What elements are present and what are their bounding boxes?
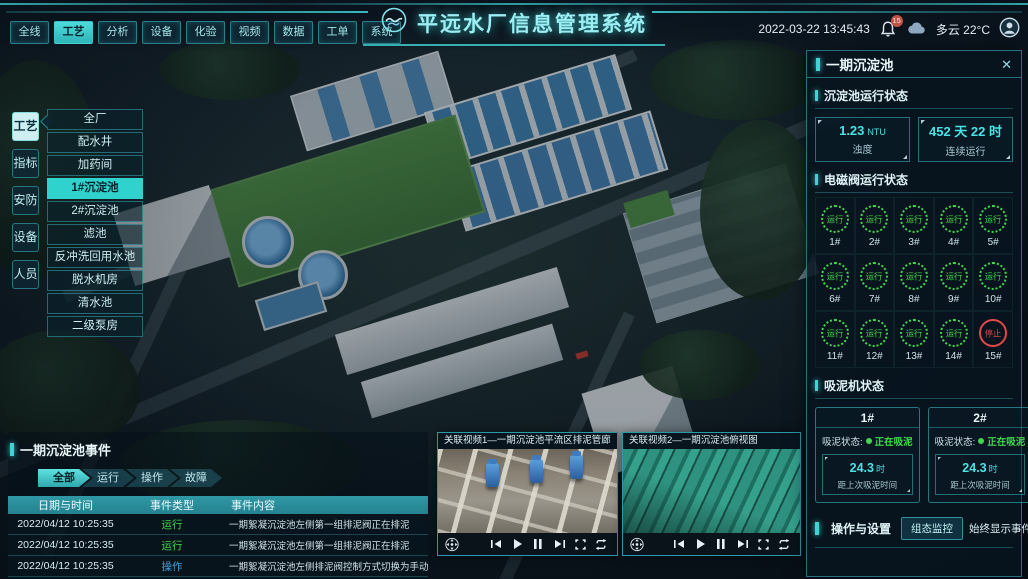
menu-item-fanchongxi[interactable]: 反冲洗回用水池	[47, 247, 143, 268]
skip-forward-icon[interactable]	[735, 537, 749, 551]
valve-status-label: 运行	[906, 327, 923, 339]
status-dot-icon	[866, 438, 872, 444]
events-table: 日期与时间 事件类型 事件内容 2022/04/12 10:25:35 运行 一…	[8, 496, 428, 579]
video-1-stream[interactable]	[438, 449, 617, 533]
fullscreen-icon[interactable]	[756, 537, 770, 551]
left-category-tabs: 工艺 指标 安防 设备 人员	[12, 112, 39, 289]
valve-id-label: 10#	[985, 294, 1002, 305]
close-icon[interactable]: ✕	[1001, 58, 1012, 71]
valve-id-label: 8#	[908, 294, 919, 305]
valve-cell: 运行11#	[815, 311, 855, 368]
nav-tab-shipin[interactable]: 视频	[230, 21, 269, 44]
video-1-controls	[438, 533, 617, 555]
valve-status-label: 运行	[827, 327, 844, 339]
pause-icon[interactable]	[531, 537, 545, 551]
map-sedimentation-tanks	[424, 54, 632, 168]
operations-settings-row: 操作与设置 组态监控 始终显示事件:	[815, 517, 1013, 548]
valve-id-label: 13#	[906, 351, 923, 362]
valve-cell: 运行9#	[934, 254, 974, 311]
header-status-area: 2022-03-22 13:45:43 15 多云 22°C	[758, 17, 1020, 41]
valve-status-label: 运行	[866, 213, 883, 225]
turbidity-label: 浊度	[853, 141, 873, 156]
weather-cloud-icon	[906, 21, 927, 38]
valve-ring: 运行	[821, 262, 849, 290]
map-building	[335, 267, 569, 375]
weather-label: 多云 22°C	[936, 21, 990, 38]
nav-tab-fenxi[interactable]: 分析	[98, 21, 137, 44]
column-datetime: 日期与时间	[8, 497, 123, 513]
operations-title: 操作与设置	[831, 520, 891, 537]
nav-tab-gongdan[interactable]: 工单	[318, 21, 357, 44]
header-left-deco-line	[6, 11, 368, 13]
valve-ring: 运行	[900, 205, 928, 233]
nav-tab-quanxian[interactable]: 全线	[10, 21, 49, 44]
valve-cell: 运行10#	[973, 254, 1013, 311]
valve-cell: 停止15#	[973, 311, 1013, 368]
side-tab-anfang[interactable]: 安防	[12, 186, 39, 215]
valve-status-label: 停止	[985, 327, 1002, 339]
menu-item-lvchi[interactable]: 滤池	[47, 224, 143, 245]
accent-bar	[815, 380, 818, 391]
valve-ring: 运行	[900, 319, 928, 347]
valve-ring: 运行	[940, 319, 968, 347]
map-trees	[650, 40, 820, 120]
side-tab-zhibiao[interactable]: 指标	[12, 149, 39, 178]
valve-ring: 运行	[979, 205, 1007, 233]
mud-time-value: 24.3	[850, 461, 874, 475]
valve-ring: 运行	[860, 319, 888, 347]
valve-status-label: 运行	[945, 213, 962, 225]
events-panel: 一期沉淀池事件 全部 运行 操作 故障 日期与时间 事件类型 事件内容 2022…	[8, 432, 428, 577]
accent-bar	[816, 58, 820, 71]
event-content: 一期絮凝沉淀池左侧第一组排泥阀正在排泥	[221, 517, 428, 531]
menu-item-quanchang[interactable]: 全厂	[47, 109, 143, 130]
play-icon[interactable]	[510, 537, 524, 551]
map-road	[62, 49, 637, 302]
section-mud-machines-header: 吸泥机状态	[815, 377, 1013, 399]
loop-icon[interactable]	[777, 537, 791, 551]
video-2-controls	[623, 533, 800, 555]
valve-cell: 运行7#	[855, 254, 895, 311]
event-content: 一期絮凝沉淀池左侧排泥阀控制方式切换为手动	[221, 559, 428, 573]
nav-tab-shuju[interactable]: 数据	[274, 21, 313, 44]
table-row[interactable]: 2022/04/12 10:25:35 运行 一期絮凝沉淀池左侧第一组排泥阀正在…	[8, 514, 428, 535]
uptime-value: 452 天 22 时	[929, 121, 1002, 140]
video-panel-2: 关联视频2—一期沉淀池俯视图	[622, 432, 801, 556]
video-2-title: 关联视频2—一期沉淀池俯视图	[623, 433, 800, 449]
accent-bar	[815, 90, 818, 101]
map-building	[361, 324, 563, 419]
side-tab-gongyi[interactable]: 工艺	[12, 112, 39, 141]
mud-time-unit: 时	[876, 464, 885, 474]
accent-bar	[815, 522, 819, 535]
header-right-deco-line	[652, 11, 1022, 13]
valve-status-label: 运行	[866, 327, 883, 339]
section-run-status-header: 沉淀池运行状态	[815, 87, 1013, 109]
valve-id-label: 2#	[869, 237, 880, 248]
pump-shape	[570, 455, 583, 479]
valve-status-label: 运行	[945, 270, 962, 282]
mud-machine-id: 1#	[816, 408, 919, 428]
valve-id-label: 14#	[945, 351, 962, 362]
map-trees	[700, 120, 820, 300]
notification-badge: 15	[891, 15, 903, 27]
playback-controls	[672, 537, 791, 551]
valve-id-label: 7#	[869, 294, 880, 305]
turbidity-unit: NTU	[867, 127, 886, 137]
menu-item-erjibengfang[interactable]: 二级泵房	[47, 316, 143, 337]
status-dot-icon	[978, 438, 984, 444]
mud-time-card: 24.3时 距上次吸泥时间	[935, 454, 1026, 495]
column-event-content: 事件内容	[221, 497, 428, 513]
mud-machine-1: 1# 吸泥状态: 正在吸泥 24.3时 距上次吸泥时间	[815, 407, 920, 503]
run-status-stats: 1.23NTU 浊度 452 天 22 时 连续运行	[815, 117, 1013, 162]
event-time: 2022/04/12 10:25:35	[8, 539, 123, 551]
nav-tab-shebei[interactable]: 设备	[142, 21, 181, 44]
valve-status-label: 运行	[985, 213, 1002, 225]
map-clarifier-tank	[242, 216, 294, 268]
event-type-badge: 运行	[123, 517, 221, 532]
valve-id-label: 5#	[988, 237, 999, 248]
valve-ring: 运行	[940, 205, 968, 233]
event-type-badge: 操作	[123, 559, 221, 574]
header-top-divider	[0, 3, 1028, 5]
mud-machine-status-row: 吸泥状态: 正在吸泥	[816, 428, 919, 448]
valve-ring: 运行	[860, 262, 888, 290]
mud-machine-status-row: 吸泥状态: 正在吸泥	[929, 428, 1028, 448]
detail-panel: 一期沉淀池 ✕ 沉淀池运行状态 1.23NTU 浊度 452 天 22 时 连续…	[806, 50, 1022, 577]
always-show-events-label: 始终显示事件:	[969, 521, 1028, 536]
valve-id-label: 12#	[866, 351, 883, 362]
main-nav: 全线 工艺 分析 设备 化验 视频 数据 工单 系统	[10, 21, 401, 44]
valve-ring: 运行	[900, 262, 928, 290]
side-tab-renyuan[interactable]: 人员	[12, 260, 39, 289]
mud-status-value: 正在吸泥	[987, 434, 1025, 448]
valve-status-label: 运行	[827, 270, 844, 282]
mud-time-card: 24.3时 距上次吸泥时间	[822, 454, 913, 495]
table-row[interactable]: 2022/04/12 10:25:35 操作 一期絮凝沉淀池左侧排泥阀控制方式切…	[8, 556, 428, 577]
event-filter-tabs: 全部 运行 操作 故障	[38, 469, 428, 487]
mud-status-label: 吸泥状态:	[935, 434, 976, 448]
user-avatar[interactable]	[999, 17, 1020, 41]
mud-machine-id: 2#	[929, 408, 1028, 428]
valve-cell: 运行13#	[894, 311, 934, 368]
map-sedimentation-tanks	[448, 110, 669, 231]
mud-time-label: 距上次吸泥时间	[936, 479, 1025, 491]
map-clarifier-tank	[298, 250, 348, 300]
section-valves-header: 电磁阀运行状态	[815, 171, 1013, 193]
valve-id-label: 3#	[908, 237, 919, 248]
valve-cell: 运行12#	[855, 311, 895, 368]
valve-cell: 运行8#	[894, 254, 934, 311]
accent-bar	[10, 443, 14, 456]
valve-ring: 运行	[860, 205, 888, 233]
turbidity-stat-card: 1.23NTU 浊度	[815, 117, 910, 162]
ptz-control-icon[interactable]	[630, 537, 644, 551]
skip-back-icon[interactable]	[672, 537, 686, 551]
map-green-roof	[209, 115, 486, 288]
play-icon[interactable]	[693, 537, 707, 551]
pause-icon[interactable]	[714, 537, 728, 551]
section-title: 沉淀池运行状态	[824, 87, 908, 104]
valve-status-label: 运行	[866, 270, 883, 282]
valve-ring: 运行	[821, 205, 849, 233]
nav-tab-gongyi[interactable]: 工艺	[54, 21, 93, 44]
uptime-label: 连续运行	[946, 143, 986, 158]
menu-item-qingshuichi[interactable]: 清水池	[47, 293, 143, 314]
valve-status-label: 运行	[906, 213, 923, 225]
video-panel-1: 关联视频1—一期沉淀池平流区排泥管廊	[437, 432, 618, 556]
app-root: 全线 工艺 分析 设备 化验 视频 数据 工单 系统 平远水厂信息管理系统 20…	[0, 0, 1028, 579]
map-trees	[640, 330, 760, 400]
section-title: 电磁阀运行状态	[824, 171, 908, 188]
map-covered-tanks	[623, 164, 819, 324]
menu-item-2-chendianchi[interactable]: 2#沉淀池	[47, 201, 143, 222]
skip-forward-icon[interactable]	[552, 537, 566, 551]
turbidity-value: 1.23	[839, 123, 864, 138]
pump-shape	[486, 463, 499, 487]
valve-id-label: 6#	[829, 294, 840, 305]
notifications-button[interactable]: 15	[879, 20, 897, 38]
menu-item-1-chendianchi[interactable]: 1#沉淀池	[47, 178, 143, 199]
valve-id-label: 4#	[948, 237, 959, 248]
mud-time-label: 距上次吸泥时间	[823, 479, 912, 491]
map-green-roof-small	[623, 190, 675, 228]
map-vehicle	[575, 350, 588, 359]
column-event-type: 事件类型	[123, 497, 221, 513]
accent-bar	[815, 174, 818, 185]
mud-status-label: 吸泥状态:	[822, 434, 863, 448]
valve-status-label: 运行	[906, 270, 923, 282]
valve-cell: 运行3#	[894, 197, 934, 254]
app-logo-icon	[381, 7, 407, 38]
valve-ring: 运行	[979, 262, 1007, 290]
menu-item-tuoshuijifang[interactable]: 脱水机房	[47, 270, 143, 291]
valve-id-label: 9#	[948, 294, 959, 305]
mud-time-unit: 时	[989, 464, 998, 474]
valve-status-grid: 运行1# 运行2# 运行3# 运行4# 运行5# 运行6# 运行7# 运行8# …	[815, 197, 1013, 368]
process-menu: 全厂 配水井 加药间 1#沉淀池 2#沉淀池 滤池 反冲洗回用水池 脱水机房 清…	[47, 109, 143, 337]
event-time: 2022/04/12 10:25:35	[8, 560, 123, 572]
menu-item-peishuijing[interactable]: 配水井	[47, 132, 143, 153]
valve-cell: 运行1#	[815, 197, 855, 254]
page-title: 平远水厂信息管理系统	[417, 8, 647, 38]
app-title-area: 平远水厂信息管理系统	[363, 7, 665, 46]
video-1-title: 关联视频1—一期沉淀池平流区排泥管廊	[438, 433, 617, 449]
table-row[interactable]: 2022/04/12 10:25:35 运行 一期絮凝沉淀池左侧第一组排泥阀正在…	[8, 535, 428, 556]
mud-machine-panels: 1# 吸泥状态: 正在吸泥 24.3时 距上次吸泥时间 2# 吸泥状态: 正在吸…	[815, 407, 1013, 503]
mud-machine-2: 2# 吸泥状态: 正在吸泥 24.3时 距上次吸泥时间	[928, 407, 1028, 503]
scada-monitor-button[interactable]: 组态监控	[901, 517, 963, 540]
event-content: 一期絮凝沉淀池左侧第一组排泥阀正在排泥	[221, 538, 428, 552]
valve-cell: 运行6#	[815, 254, 855, 311]
valve-ring: 运行	[821, 319, 849, 347]
map-building	[290, 51, 455, 152]
valve-ring: 运行	[940, 262, 968, 290]
valve-cell: 运行2#	[855, 197, 895, 254]
event-time: 2022/04/12 10:25:35	[8, 518, 123, 530]
valve-status-label: 运行	[985, 270, 1002, 282]
valve-id-label: 15#	[985, 351, 1002, 362]
events-panel-header: 一期沉淀池事件	[8, 432, 428, 459]
uptime-stat-card: 452 天 22 时 连续运行	[918, 117, 1013, 162]
valve-cell: 运行4#	[934, 197, 974, 254]
menu-item-jiayaojian[interactable]: 加药间	[47, 155, 143, 176]
detail-panel-title: 一期沉淀池	[826, 54, 894, 74]
pump-shape	[530, 459, 543, 483]
mud-status-value: 正在吸泥	[875, 434, 913, 448]
valve-status-label: 运行	[945, 327, 962, 339]
datetime-label: 2022-03-22 13:45:43	[758, 22, 869, 36]
video-2-stream[interactable]	[623, 449, 800, 533]
valve-id-label: 1#	[829, 237, 840, 248]
event-type-badge: 运行	[123, 538, 221, 553]
ptz-control-icon[interactable]	[445, 537, 459, 551]
map-pool	[255, 281, 327, 331]
nav-tab-huayan[interactable]: 化验	[186, 21, 225, 44]
detail-panel-header: 一期沉淀池 ✕	[807, 51, 1021, 78]
events-table-header: 日期与时间 事件类型 事件内容	[8, 496, 428, 514]
mud-time-value: 24.3	[962, 461, 986, 475]
top-header: 全线 工艺 分析 设备 化验 视频 数据 工单 系统 平远水厂信息管理系统 20…	[0, 0, 1028, 52]
valve-status-label: 运行	[827, 213, 844, 225]
loop-icon[interactable]	[594, 537, 608, 551]
section-title: 吸泥机状态	[824, 377, 884, 394]
valve-cell: 运行14#	[934, 311, 974, 368]
events-panel-title: 一期沉淀池事件	[20, 440, 111, 459]
event-tab-all[interactable]: 全部	[38, 469, 90, 487]
playback-controls	[489, 537, 608, 551]
valve-ring: 停止	[979, 319, 1007, 347]
side-tab-shebei[interactable]: 设备	[12, 223, 39, 252]
fullscreen-icon[interactable]	[573, 537, 587, 551]
skip-back-icon[interactable]	[489, 537, 503, 551]
valve-cell: 运行5#	[973, 197, 1013, 254]
valve-id-label: 11#	[827, 351, 843, 362]
